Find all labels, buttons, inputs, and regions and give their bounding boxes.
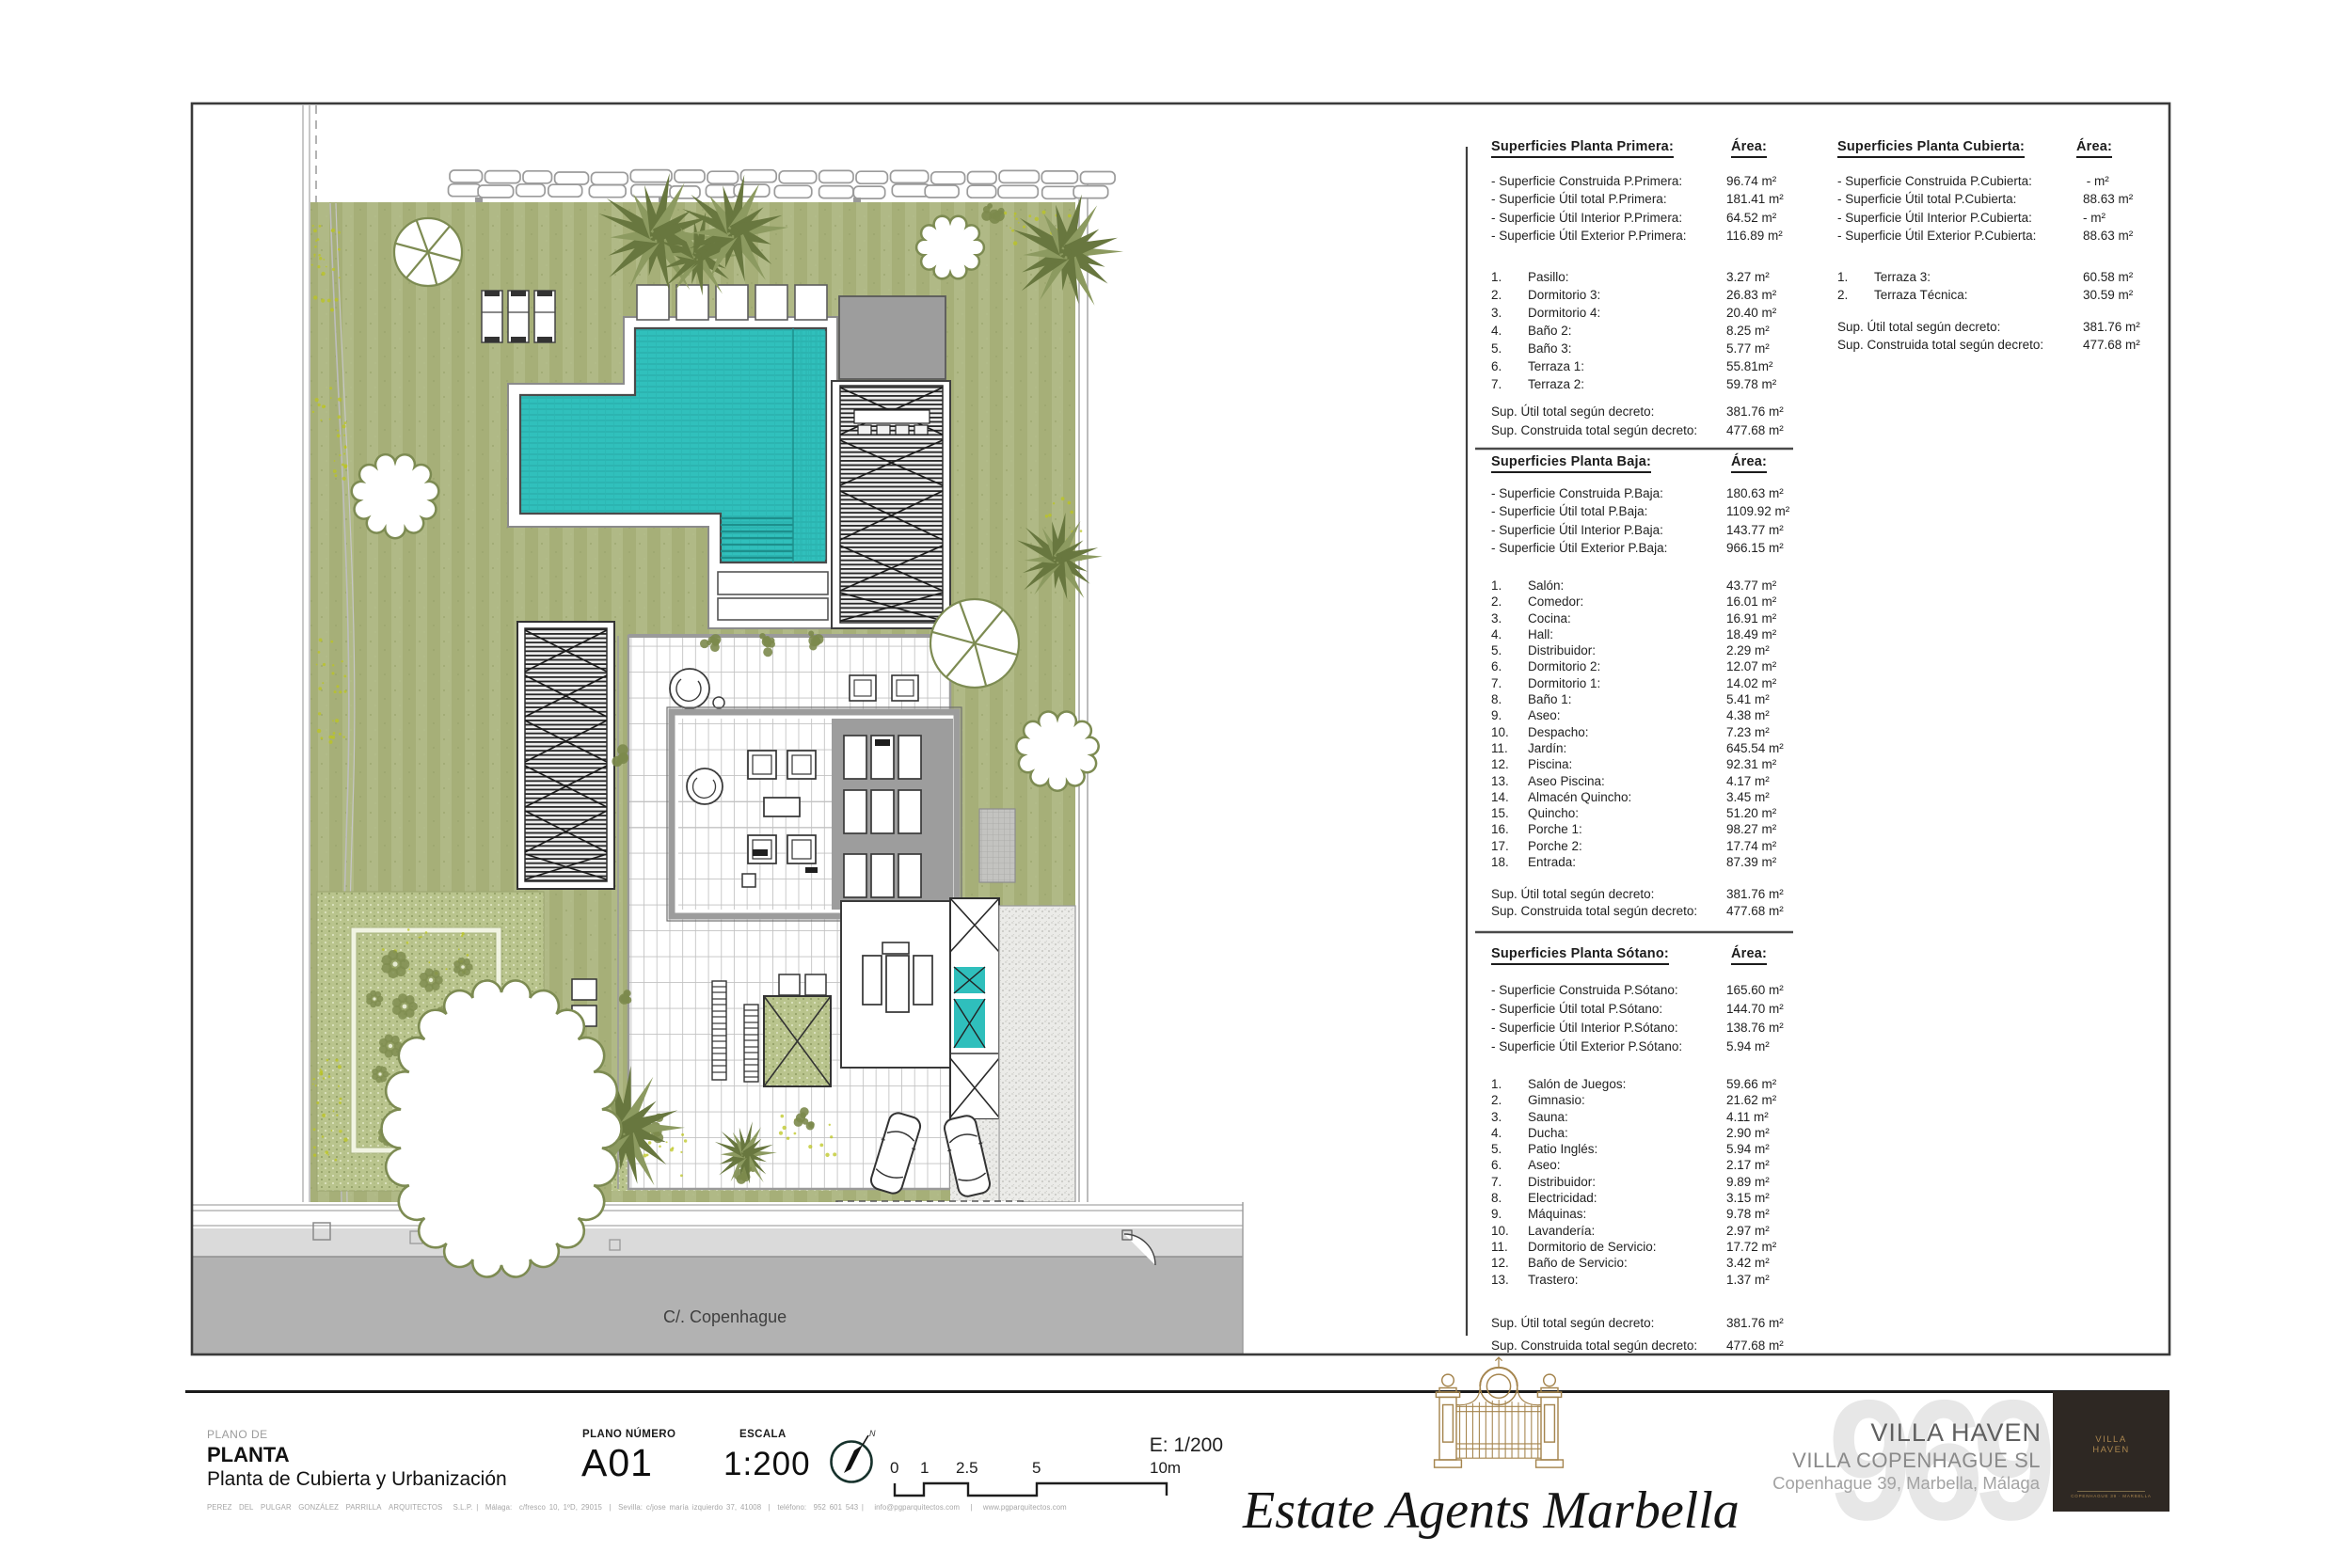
- svg-text:0: 0: [890, 1459, 898, 1477]
- svg-text:2.5: 2.5: [956, 1459, 978, 1477]
- svg-text:1: 1: [920, 1459, 929, 1477]
- svg-text:N: N: [869, 1429, 876, 1438]
- svg-text:10m: 10m: [1150, 1459, 1181, 1477]
- svg-text:5: 5: [1032, 1459, 1041, 1477]
